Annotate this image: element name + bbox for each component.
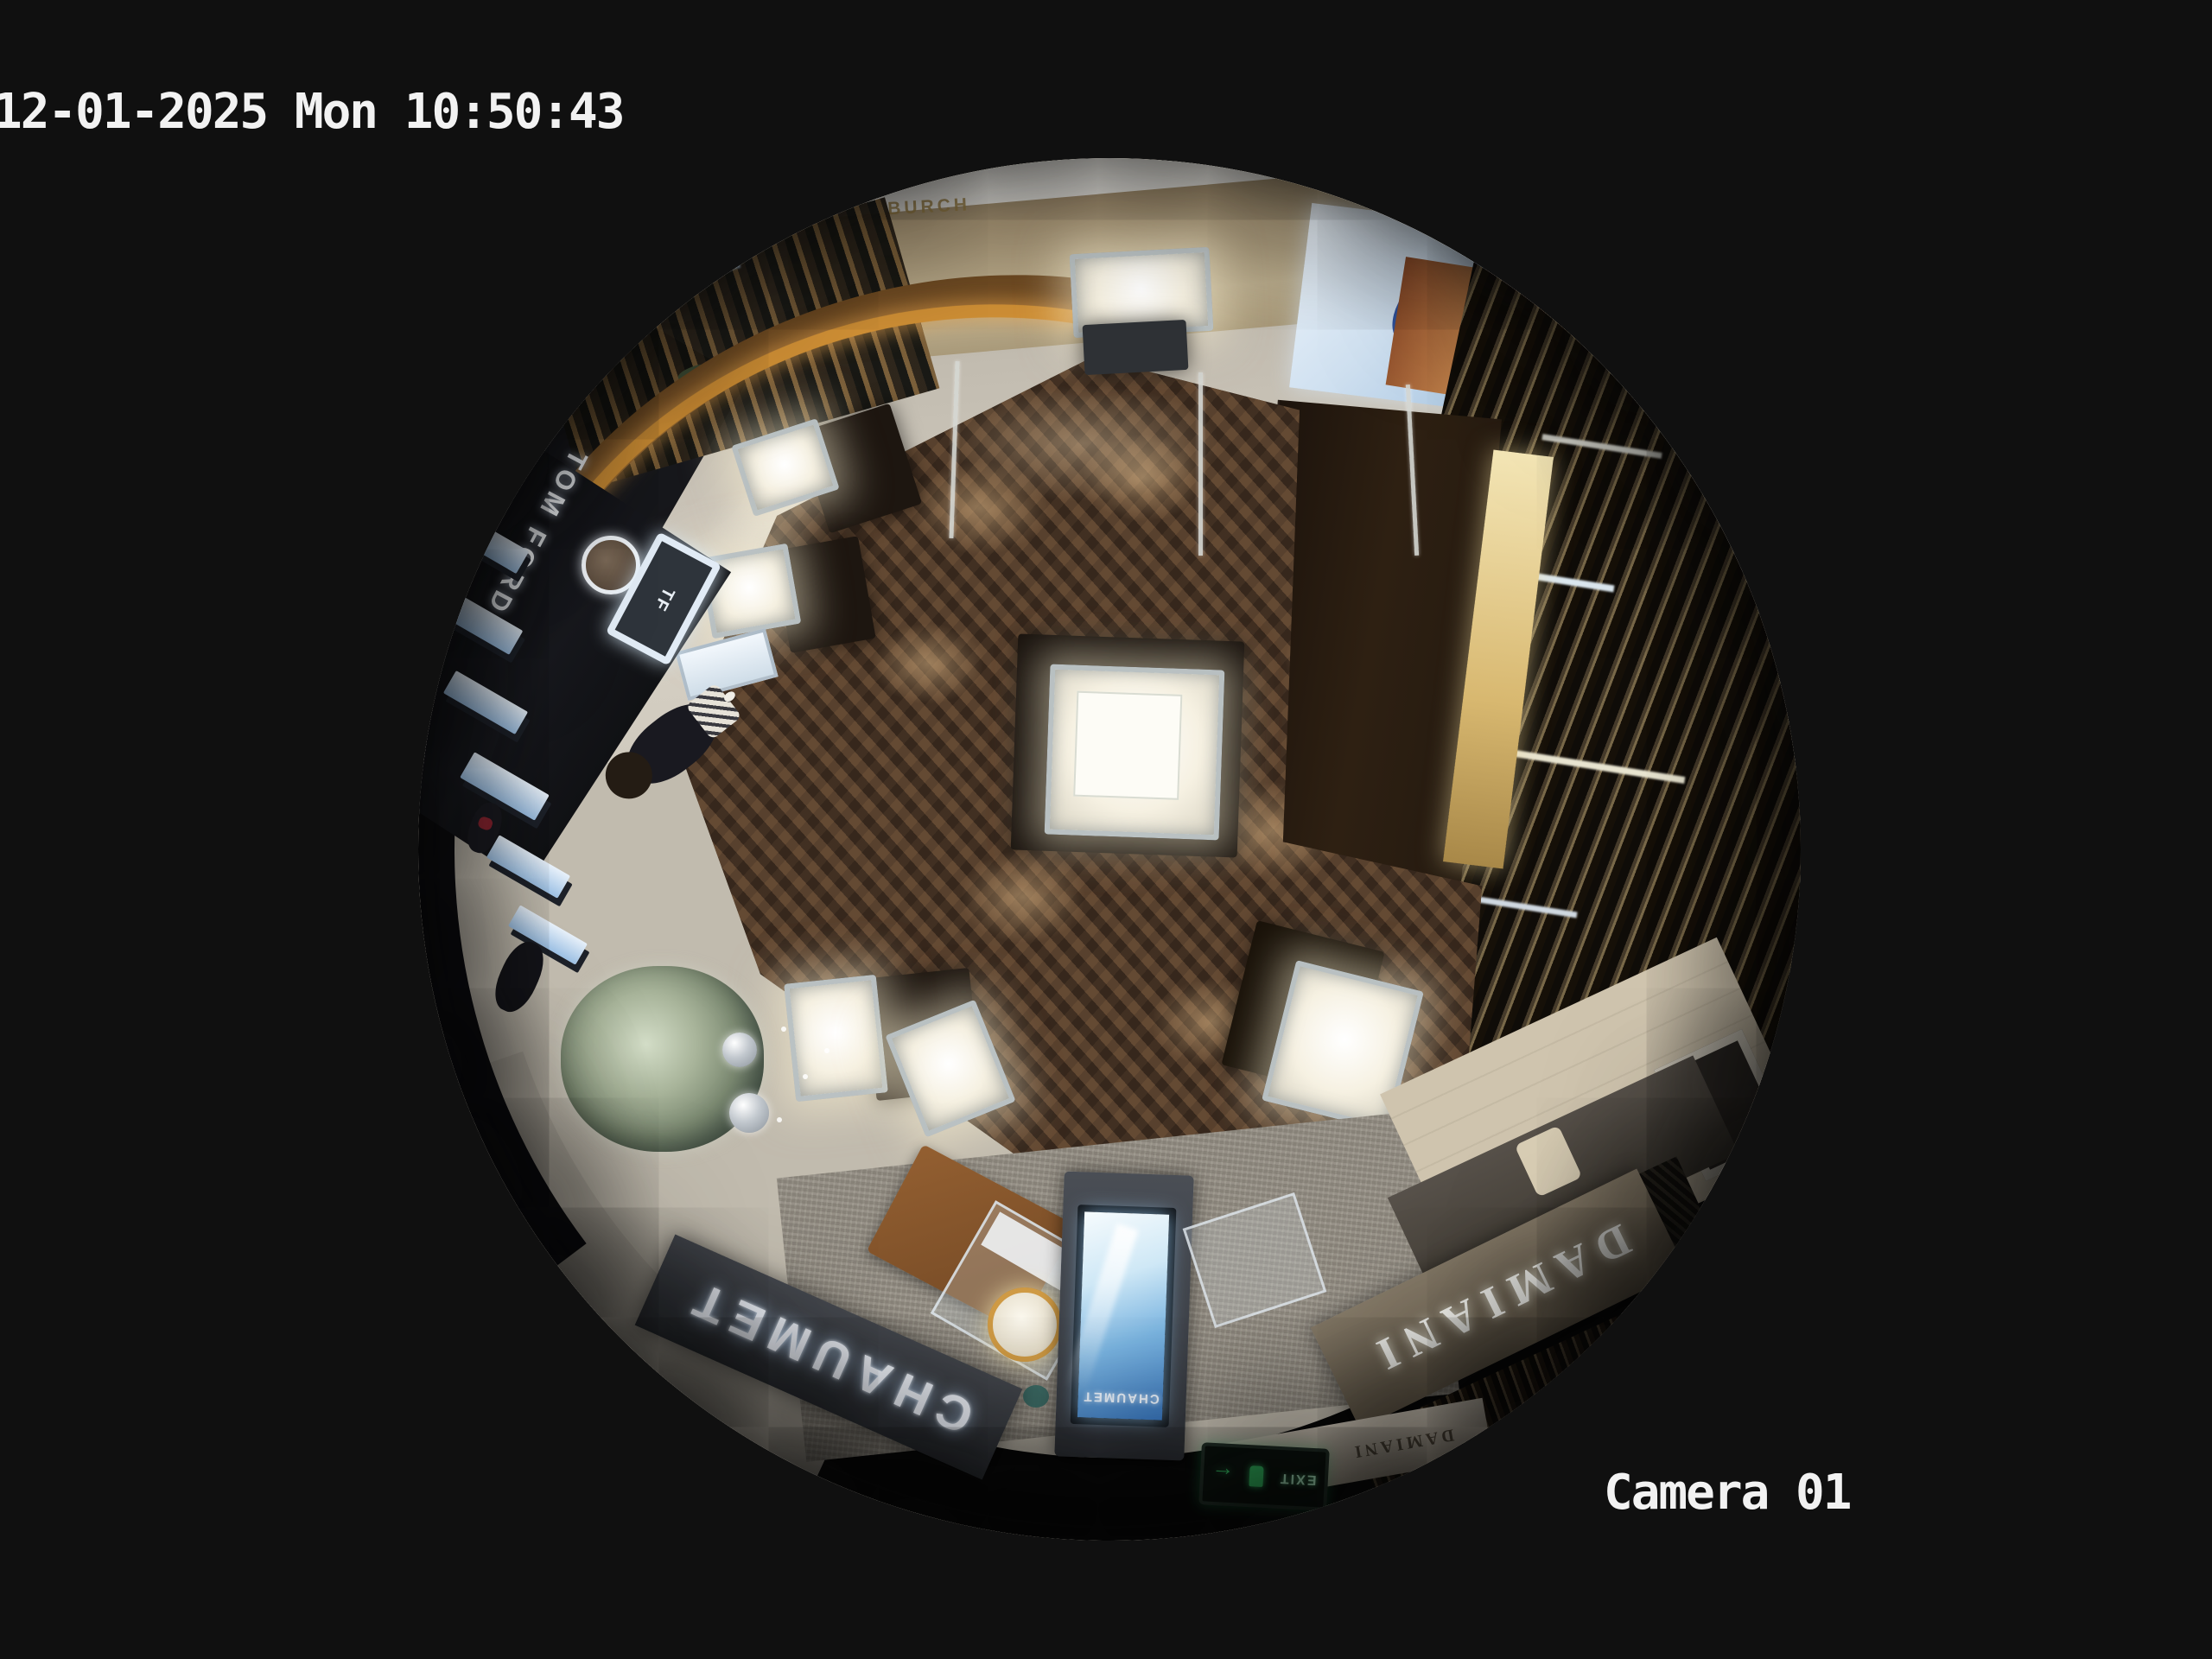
screen-glare xyxy=(1064,1224,1139,1395)
exit-sign: ← EXIT xyxy=(1198,1442,1330,1511)
glass-gate-post xyxy=(1198,372,1203,556)
osd-camera-label: Camera 01 xyxy=(1604,1469,1850,1517)
tf-badge-text: TF xyxy=(649,583,678,614)
cctv-frame: 12-01-2025 Mon 10:50:43 BURCH xyxy=(0,0,2212,1659)
damiani-small-sign-text: DAMIANI xyxy=(1350,1424,1455,1462)
floor-sparkle xyxy=(824,1048,829,1053)
ornament-ball xyxy=(729,1093,769,1133)
display-pedestal xyxy=(1083,320,1189,375)
floor-sparkle xyxy=(777,1117,782,1122)
osd-timestamp: 12-01-2025 Mon 10:50:43 xyxy=(0,88,623,137)
person-clothing xyxy=(477,816,494,832)
exit-arrow-icon: ← xyxy=(1211,1460,1235,1488)
fisheye-camera-feed: BURCH xyxy=(418,158,1801,1541)
ornament-ball xyxy=(722,1033,757,1067)
display-case xyxy=(784,975,888,1102)
exit-running-man-icon xyxy=(1249,1465,1264,1487)
round-lit-display xyxy=(988,1287,1062,1362)
floor-sparkle xyxy=(781,1027,786,1032)
stool xyxy=(1023,1385,1049,1408)
floor-sparkle xyxy=(803,1074,808,1079)
case-inner-tray xyxy=(1073,691,1182,800)
digital-kiosk: CHAUMET xyxy=(1054,1171,1193,1460)
exit-sign-text: EXIT xyxy=(1279,1470,1317,1487)
kiosk-bezel: CHAUMET xyxy=(1071,1205,1177,1427)
kiosk-screen: CHAUMET xyxy=(1077,1211,1169,1420)
display-case-center xyxy=(1045,664,1225,841)
kiosk-brand-text: CHAUMET xyxy=(1082,1389,1160,1406)
